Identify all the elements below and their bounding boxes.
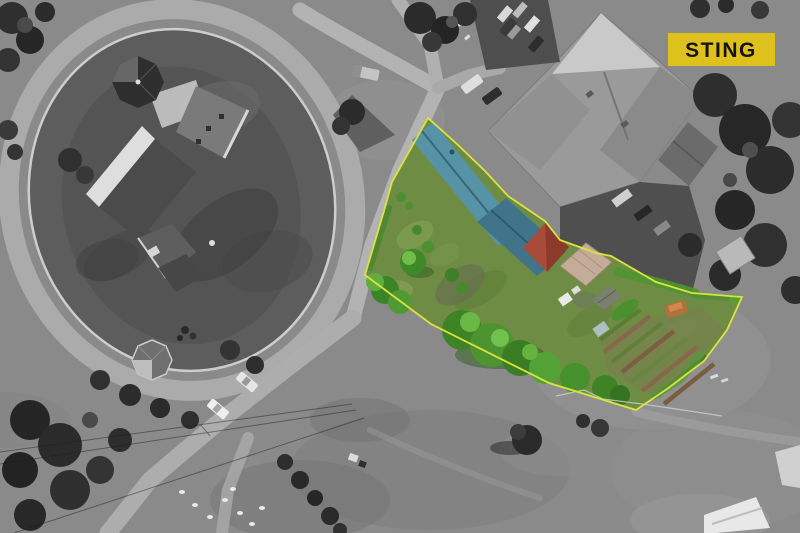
- aerial-photo-canvas: STING: [0, 0, 800, 533]
- sting-badge: STING: [668, 33, 775, 66]
- aerial-photo: STING: [0, 0, 800, 533]
- badge-label: STING: [685, 39, 757, 62]
